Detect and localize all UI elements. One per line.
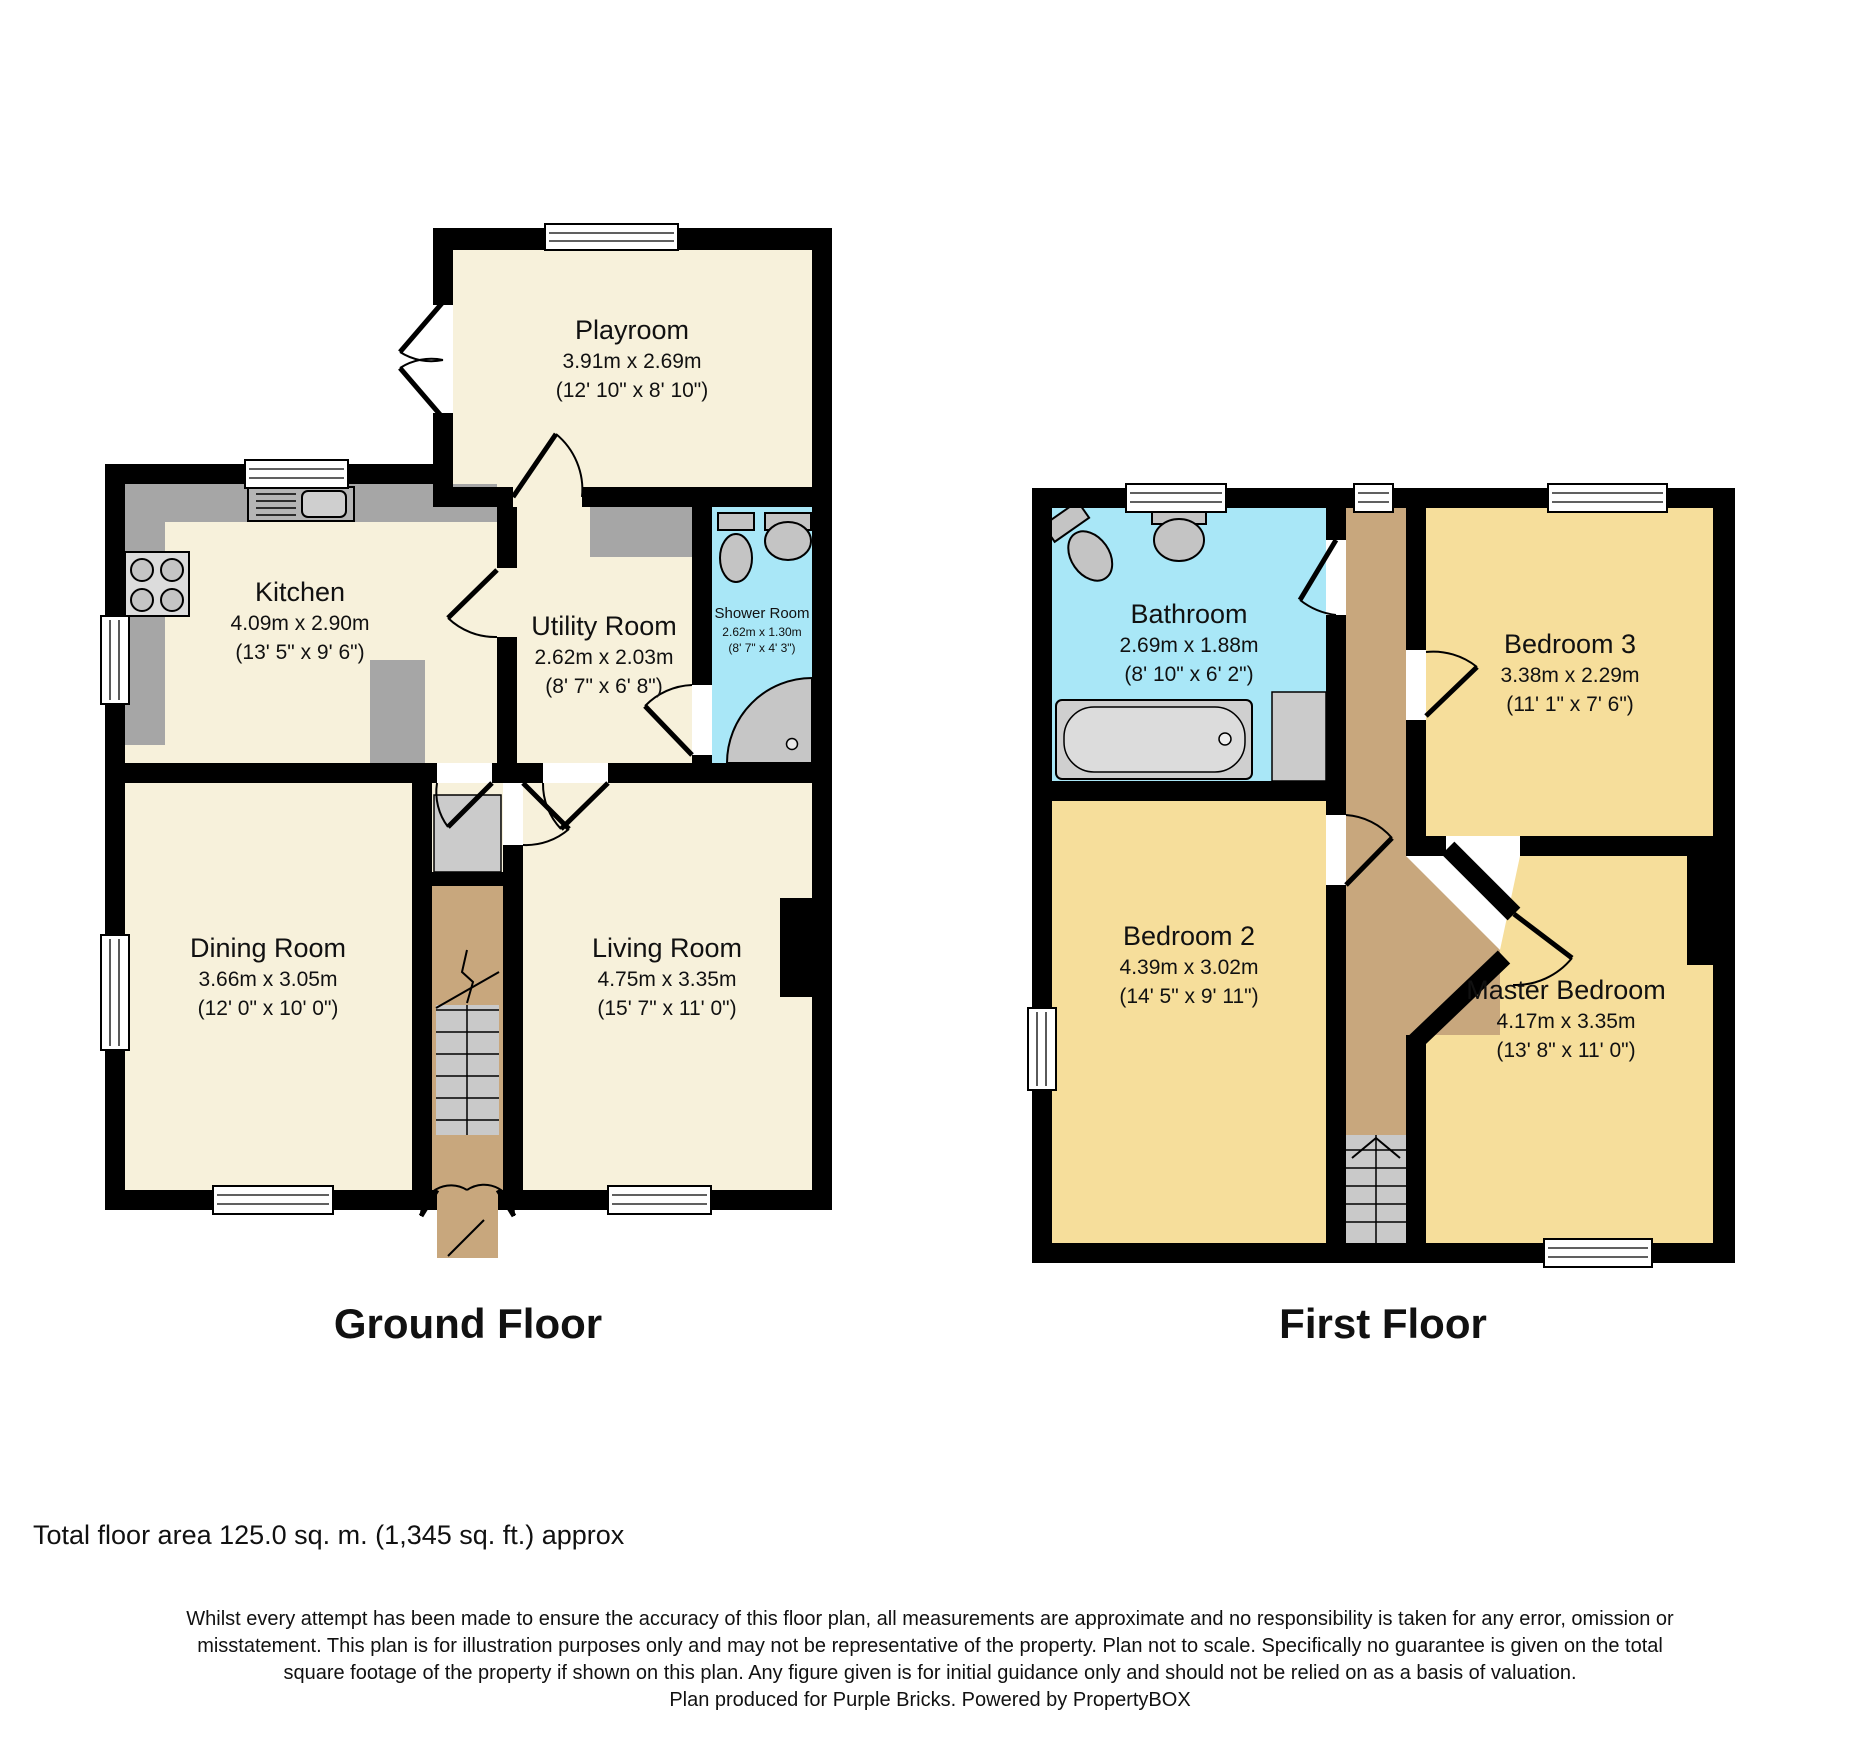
toilet-icon [718, 513, 754, 582]
window-icon [1126, 484, 1226, 512]
kitchen-sink-icon [248, 487, 354, 521]
master-chimney-breast [1687, 838, 1713, 965]
first-floor-title: First Floor [1279, 1300, 1487, 1348]
basin-icon [1152, 508, 1206, 561]
window-icon [1548, 484, 1667, 512]
total-floor-area: Total floor area 125.0 sq. m. (1,345 sq.… [33, 1520, 624, 1551]
porch-floor [437, 1190, 498, 1258]
room-label-bedroom3: Bedroom 3 3.38m x 2.29m (11' 1" x 7' 6") [1501, 628, 1640, 719]
window-icon [101, 935, 129, 1050]
window-icon [545, 224, 678, 250]
room-label-master: Master Bedroom 4.17m x 3.35m (13' 8" x 1… [1466, 974, 1666, 1065]
disclaimer-line: Whilst every attempt has been made to en… [20, 1606, 1840, 1633]
ground-floor-title: Ground Floor [334, 1300, 602, 1348]
disclaimer-line: misstatement. This plan is for illustrat… [20, 1633, 1840, 1660]
window-icon [213, 1186, 333, 1214]
room-label-bathroom: Bathroom 2.69m x 1.88m (8' 10" x 6' 2") [1120, 598, 1259, 689]
airing-cupboard [1272, 692, 1326, 781]
room-label-living: Living Room 4.75m x 3.35m (15' 7" x 11' … [592, 932, 742, 1023]
disclaimer-line: square footage of the property if shown … [20, 1660, 1840, 1687]
room-label-shower: Shower Room 2.62m x 1.30m (8' 7" x 4' 3"… [714, 604, 809, 656]
floorplan-drawing [0, 0, 1860, 1745]
room-label-dining: Dining Room 3.66m x 3.05m (12' 0" x 10' … [190, 932, 346, 1023]
room-label-bedroom2: Bedroom 2 4.39m x 3.02m (14' 5" x 9' 11"… [1119, 920, 1258, 1011]
kitchen-hob-icon [125, 552, 189, 616]
window-icon [608, 1186, 711, 1214]
utility-counter [590, 507, 692, 557]
disclaimer-line: Plan produced for Purple Bricks. Powered… [20, 1687, 1840, 1714]
kitchen-peninsula [370, 660, 425, 765]
ground-floor-plan [101, 224, 832, 1258]
window-icon [1354, 484, 1393, 512]
room-label-playroom: Playroom 3.91m x 2.69m (12' 10" x 8' 10"… [556, 314, 709, 405]
window-icon [1028, 1008, 1056, 1090]
basin-icon [765, 513, 811, 560]
landing-floor [1346, 508, 1406, 1135]
room-label-utility: Utility Room 2.62m x 2.03m (8' 7" x 6' 8… [531, 610, 677, 701]
living-chimney-breast [780, 898, 812, 997]
bath-tub-icon [1056, 700, 1252, 779]
french-doors [400, 302, 443, 418]
window-icon [1544, 1239, 1652, 1267]
window-icon [101, 616, 129, 704]
room-label-kitchen: Kitchen 4.09m x 2.90m (13' 5" x 9' 6") [231, 576, 370, 667]
disclaimer-text: Whilst every attempt has been made to en… [20, 1606, 1840, 1714]
first-floor-stairs [1346, 1135, 1406, 1243]
floorplan-page: Playroom 3.91m x 2.69m (12' 10" x 8' 10"… [0, 0, 1860, 1745]
bedroom2-area [1052, 801, 1326, 1243]
window-icon [245, 460, 348, 488]
